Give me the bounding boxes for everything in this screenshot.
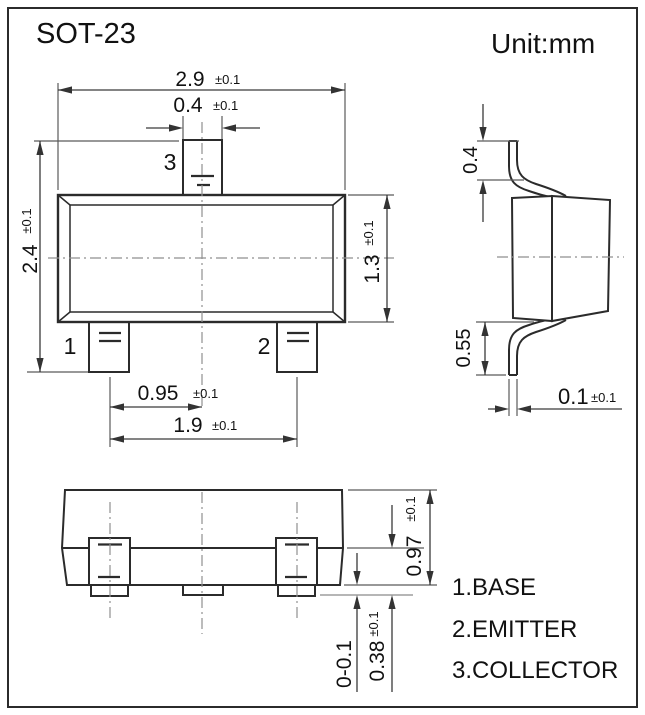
body-front-facet	[512, 196, 552, 321]
dim-overall-height: 2.4 ±0.1	[19, 141, 179, 372]
dim-value: 1.3	[361, 254, 384, 283]
pin1-lead	[89, 322, 129, 372]
arrowhead-bottom	[36, 358, 43, 372]
side-view	[497, 141, 624, 375]
dim-body-height: 1.3 ±0.1	[348, 195, 394, 322]
dim-tolerance: ±0.1	[215, 72, 240, 87]
arrowhead-bottom	[481, 361, 488, 375]
unit-label: Unit:mm	[491, 28, 595, 59]
arrowhead-top	[479, 127, 486, 141]
extension-lines	[27, 141, 179, 372]
dim-value: 0.95	[138, 382, 179, 405]
front-view: 3 1 2	[48, 122, 394, 408]
legend-item-collector: 3.COLLECTOR	[452, 657, 618, 684]
bottom-lead-outer-edge	[509, 320, 548, 375]
dim-value: 0.55	[453, 329, 475, 368]
arrowhead-bottom	[426, 571, 433, 585]
dim-lead-thickness: 0.1 ±0.1	[488, 379, 622, 416]
dim-value: 0.1	[558, 384, 589, 409]
dim-value: 0.38	[366, 641, 389, 682]
arrowhead-top	[383, 195, 390, 209]
pin3-lead-foot	[183, 585, 223, 595]
bottom-view	[62, 490, 343, 634]
dim-value: 2.9	[175, 68, 204, 91]
arrowhead-right	[283, 435, 297, 442]
pin1-label: 1	[64, 333, 77, 359]
body-side-facet	[552, 196, 610, 321]
arrowhead-right	[331, 86, 345, 93]
pin2-lead	[277, 322, 317, 372]
arrowhead-bottom	[479, 180, 486, 194]
pin3-label: 3	[164, 149, 177, 175]
datasheet-page: SOT-23 Unit:mm 3 1 2 2.9 ±0.1	[0, 0, 645, 715]
dim-value: 1.9	[173, 414, 202, 437]
dim-tolerance: ±0.1	[212, 418, 237, 433]
dim-value: 0-0.1	[333, 640, 356, 688]
bottom-lead-inner-edge	[517, 320, 566, 375]
top-lead-inner-edge	[517, 141, 566, 196]
pin1-mark	[99, 333, 121, 341]
arrowhead-left	[169, 124, 183, 131]
arrowhead-left	[110, 403, 124, 410]
arrowhead-top	[388, 534, 395, 548]
legend-item-emitter: 2.EMITTER	[452, 616, 577, 643]
arrowhead-left	[110, 435, 124, 442]
dim-tolerance: ±0.1	[403, 496, 418, 521]
arrowhead-left	[495, 405, 509, 412]
dim-tab-width: 0.4 ±0.1	[146, 94, 260, 139]
arrowhead-top	[481, 322, 488, 336]
dim-value: 0.97	[403, 536, 426, 577]
dim-tolerance: ±0.1	[193, 386, 218, 401]
page-title: SOT-23	[36, 18, 136, 50]
pin2-label: 2	[258, 333, 271, 359]
dim-tolerance: ±0.1	[366, 611, 381, 636]
arrowhead-right	[222, 124, 236, 131]
arrowhead-bottom	[353, 595, 360, 609]
dim-tolerance: ±0.1	[19, 208, 34, 233]
pin-legend: 1.BASE 2.EMITTER 3.COLLECTOR	[452, 574, 618, 684]
dim-tolerance: ±0.1	[591, 390, 616, 405]
arrowhead-right	[188, 403, 202, 410]
dim-bottom-lead-height: 0.55	[453, 322, 534, 375]
arrowhead-bottom	[388, 595, 395, 609]
arrowhead-right	[517, 405, 531, 412]
arrowhead-top	[36, 141, 43, 155]
legend-item-base: 1.BASE	[452, 574, 536, 601]
page-border	[8, 8, 637, 707]
top-lead-outer-edge	[509, 141, 548, 197]
arrowhead-bottom	[383, 308, 390, 322]
arrowhead-top	[353, 571, 360, 585]
dim-value: 0.4	[173, 94, 203, 117]
dim-tolerance: ±0.1	[361, 220, 376, 245]
dim-value: 2.4	[19, 244, 42, 274]
dim-tolerance: ±0.1	[213, 98, 238, 113]
arrowhead-top	[426, 490, 433, 504]
extension-lines	[509, 379, 517, 416]
arrowhead-left	[58, 86, 72, 93]
pin2-mark	[287, 333, 309, 341]
sot23-package-drawing: SOT-23 Unit:mm 3 1 2 2.9 ±0.1	[0, 0, 645, 715]
dim-value: 0.4	[460, 146, 482, 174]
